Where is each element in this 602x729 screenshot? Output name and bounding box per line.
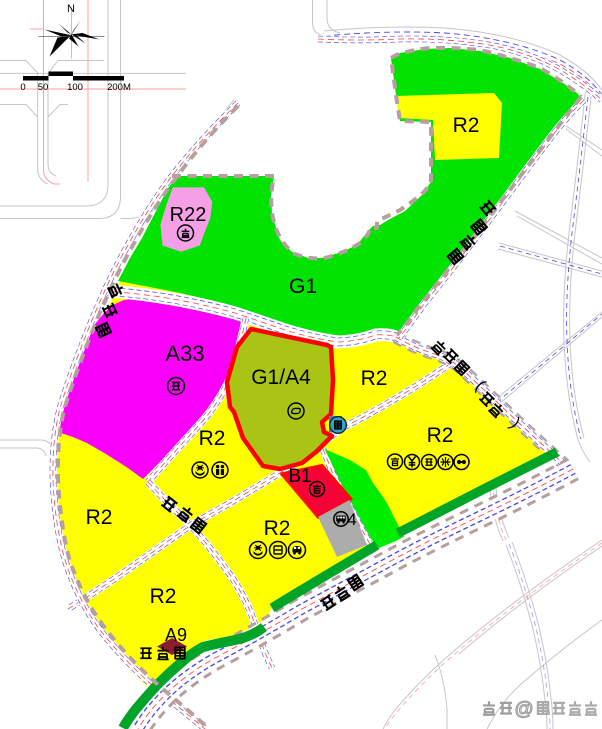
- svg-text:G1: G1: [289, 275, 317, 298]
- svg-text:R2: R2: [453, 114, 480, 137]
- svg-text:@: @: [514, 699, 533, 720]
- svg-text:R2: R2: [86, 506, 113, 529]
- svg-text:R22: R22: [170, 204, 207, 226]
- svg-text:R2: R2: [361, 367, 388, 390]
- svg-text:100: 100: [67, 82, 83, 93]
- svg-text:R2: R2: [150, 585, 177, 608]
- svg-text:A9: A9: [165, 625, 187, 645]
- svg-text:R2: R2: [427, 424, 454, 447]
- svg-text:200M: 200M: [107, 82, 131, 93]
- svg-text:B1: B1: [288, 466, 311, 487]
- svg-text:50: 50: [38, 82, 49, 93]
- svg-text:R2: R2: [264, 517, 291, 540]
- svg-text:A33: A33: [165, 341, 204, 366]
- svg-text:N: N: [67, 3, 75, 15]
- svg-text:R2: R2: [199, 427, 226, 450]
- svg-text:G1/A4: G1/A4: [251, 366, 311, 389]
- svg-text:4: 4: [347, 510, 356, 529]
- svg-text:0: 0: [20, 82, 25, 93]
